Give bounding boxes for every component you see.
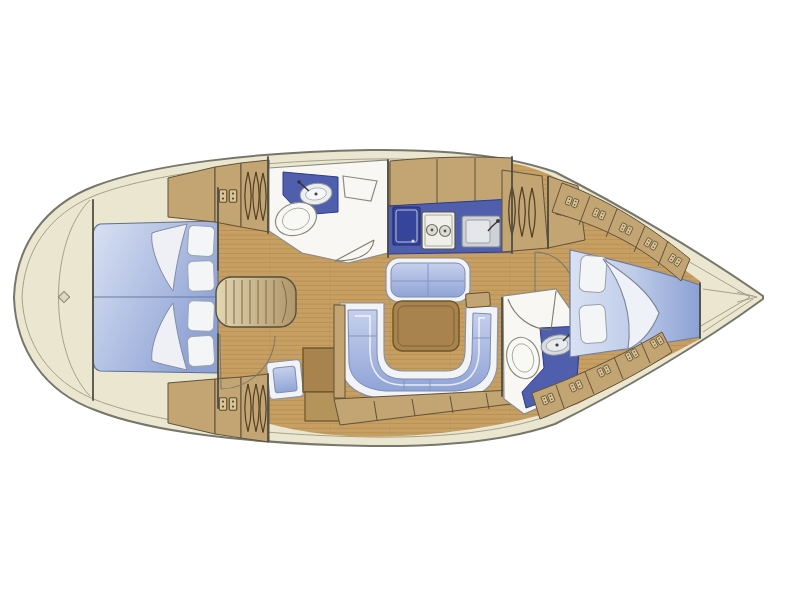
galley-upper-lockers (390, 157, 512, 206)
yacht-floor-plan (0, 0, 800, 600)
pillow (579, 304, 608, 344)
side-shelf (466, 292, 491, 308)
shower-seat (343, 176, 377, 201)
galley-stove (422, 212, 455, 249)
salon-bench-seat (386, 258, 470, 302)
companionway-steps (216, 277, 296, 327)
pillow (187, 301, 214, 332)
aft-cabin (93, 221, 218, 373)
settee-end-cabinet (334, 305, 345, 398)
pillow (187, 261, 214, 292)
screenshot (0, 0, 800, 600)
pillow (187, 335, 215, 366)
galley-sink (462, 216, 500, 247)
pillow (579, 255, 607, 293)
salon-table (393, 301, 459, 351)
galley (388, 157, 512, 254)
nav-stool (266, 359, 304, 399)
pillow (187, 225, 215, 256)
galley-fridge (393, 207, 420, 245)
